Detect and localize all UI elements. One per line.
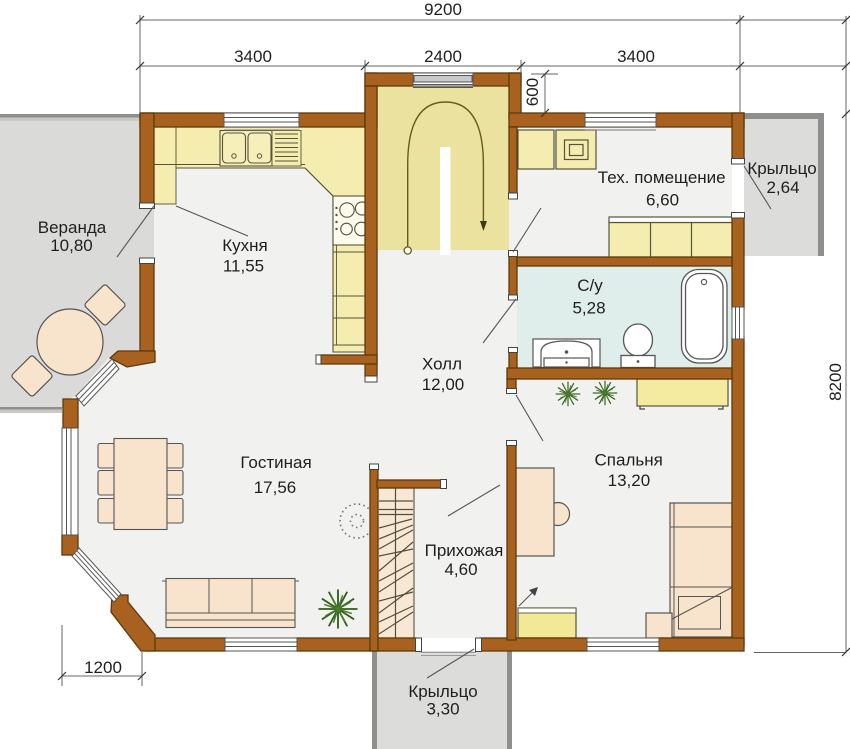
svg-text:12,00: 12,00 — [422, 375, 465, 394]
svg-text:3400: 3400 — [617, 47, 655, 66]
svg-text:4,60: 4,60 — [444, 560, 477, 579]
svg-text:Крыльцо: Крыльцо — [747, 159, 816, 178]
svg-text:Спальня: Спальня — [595, 451, 663, 470]
svg-text:3,30: 3,30 — [426, 700, 459, 719]
svg-text:С/у: С/у — [577, 276, 603, 295]
svg-text:5,28: 5,28 — [572, 299, 605, 318]
svg-text:Холл: Холл — [422, 355, 462, 374]
svg-text:2,64: 2,64 — [766, 178, 799, 197]
svg-text:Тех. помещение: Тех. помещение — [598, 168, 726, 187]
svg-text:Прихожая: Прихожая — [425, 541, 504, 560]
svg-text:Крыльцо: Крыльцо — [408, 682, 477, 701]
svg-text:1200: 1200 — [84, 658, 122, 677]
svg-text:Кухня: Кухня — [222, 236, 268, 255]
svg-text:11,55: 11,55 — [223, 257, 264, 276]
svg-text:9200: 9200 — [424, 0, 462, 19]
svg-text:8200: 8200 — [826, 363, 845, 401]
svg-text:13,20: 13,20 — [608, 471, 651, 490]
svg-text:6,60: 6,60 — [646, 191, 679, 210]
svg-text:Веранда: Веранда — [38, 218, 107, 237]
svg-text:10,80: 10,80 — [50, 236, 93, 255]
svg-text:600: 600 — [523, 78, 542, 106]
svg-text:3400: 3400 — [234, 47, 272, 66]
svg-text:2400: 2400 — [424, 47, 462, 66]
svg-text:Гостиная: Гостиная — [240, 453, 311, 472]
svg-text:17,56: 17,56 — [254, 478, 297, 497]
